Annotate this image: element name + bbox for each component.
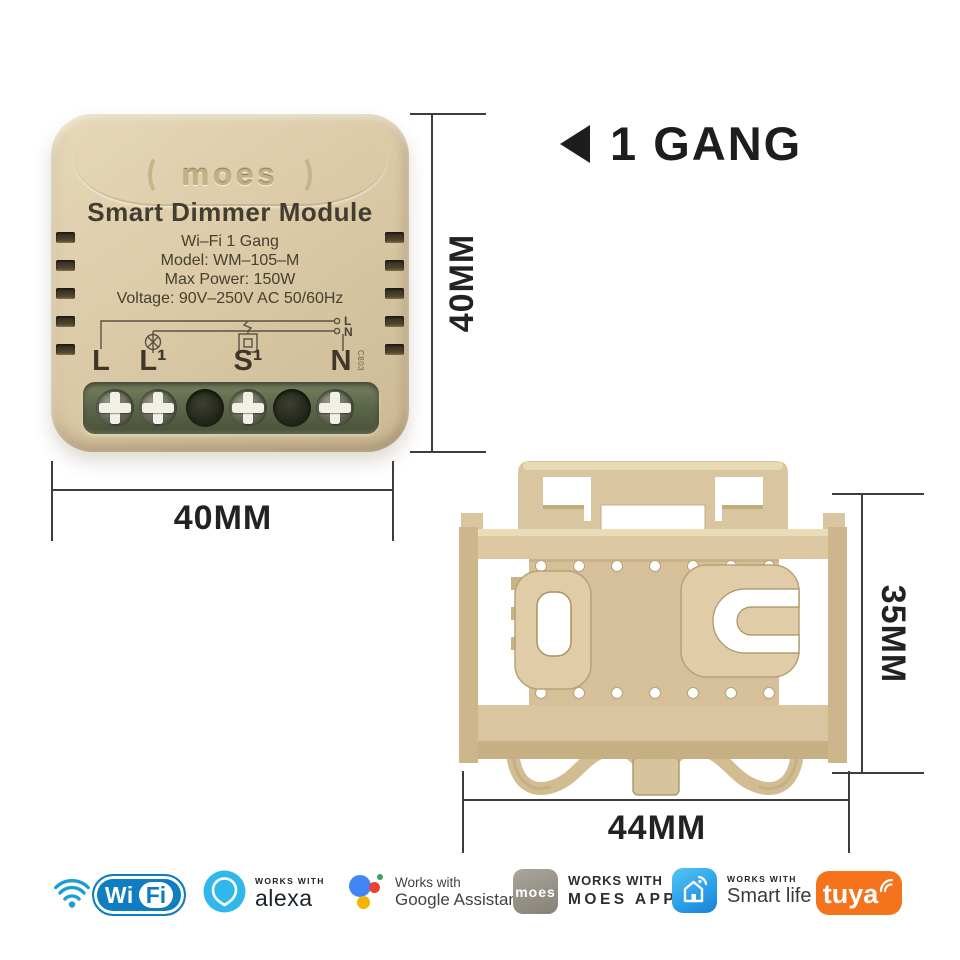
moes-app-icon-text: moes xyxy=(515,884,556,900)
gang-heading: 1 GANG xyxy=(560,120,802,167)
smart-life-badge: WORKS WITH Smart life xyxy=(727,874,811,908)
wifi-wi-text: Wi xyxy=(105,882,134,909)
alexa-name: alexa xyxy=(255,886,325,910)
smart-life-caption: WORKS WITH xyxy=(727,874,811,884)
bracket-right-boss xyxy=(681,565,799,677)
dimension-tick xyxy=(51,461,53,541)
bracket-side-frame xyxy=(459,527,478,763)
wiring-output-n: N xyxy=(344,325,353,339)
front-width-label: 40MM xyxy=(163,501,283,535)
tuya-logo: tuya xyxy=(816,871,902,915)
device-title: Smart Dimmer Module xyxy=(51,197,409,228)
google-green-dot xyxy=(377,874,383,880)
gang-label: 1 GANG xyxy=(610,120,802,167)
brand-arc-left-icon xyxy=(148,154,172,196)
tuya-name: tuya xyxy=(823,881,879,908)
terminal-screw xyxy=(229,389,267,427)
dimension-line xyxy=(861,494,863,774)
device-specs: Wi–Fi 1 Gang Model: WM–105–M Max Power: … xyxy=(51,232,409,308)
brand-logo-text: moes xyxy=(182,157,279,193)
brand-arc-right-icon xyxy=(288,154,312,196)
smart-life-name: Smart life xyxy=(727,884,811,908)
vent-slot xyxy=(385,288,404,299)
terminal-hole xyxy=(273,389,311,427)
dimension-tick xyxy=(410,113,486,115)
terminal-screw xyxy=(139,389,177,427)
bracket-height-label: 35MM xyxy=(876,574,910,694)
google-caption: Works with xyxy=(395,874,523,891)
bracket-side-frame xyxy=(828,527,847,763)
vent-slot xyxy=(56,288,75,299)
dimension-line xyxy=(52,489,394,491)
smart-life-house-icon xyxy=(672,868,717,913)
spec-line: Max Power: 150W xyxy=(51,270,409,289)
dimension-tick xyxy=(392,461,394,541)
vent-slot xyxy=(56,232,75,243)
dimension-tick xyxy=(462,771,464,853)
dimension-line xyxy=(431,114,433,452)
moes-app-name: MOES APP xyxy=(568,890,677,910)
terminal-screw xyxy=(316,389,354,427)
dimension-tick xyxy=(832,493,924,495)
wifi-signal-icon xyxy=(54,879,90,909)
side-code: C803 xyxy=(356,350,365,371)
vent-slot xyxy=(385,232,404,243)
dimension-tick xyxy=(832,772,924,774)
bracket-spring-clip xyxy=(633,757,679,795)
left-triangle-icon xyxy=(560,125,590,163)
google-yellow-dot xyxy=(357,896,370,909)
brand-logo: moes xyxy=(51,154,409,196)
alexa-badge: WORKS WITH alexa xyxy=(255,876,325,910)
dimension-tick xyxy=(848,771,850,853)
moes-app-icon: moes xyxy=(513,869,558,914)
vent-slot xyxy=(56,260,75,271)
tuya-signal-icon xyxy=(879,878,895,893)
terminal-label-l1: L¹ xyxy=(125,345,181,378)
google-assistant-icon xyxy=(346,870,390,912)
product-diagram-page: 1 GANG moes Smart Dimmer Module Wi–Fi 1 … xyxy=(0,0,960,960)
bracket-width-label: 44MM xyxy=(597,811,717,845)
moes-app-caption: WORKS WITH xyxy=(568,872,677,890)
terminal-hole xyxy=(186,389,224,427)
dimension-line xyxy=(463,799,849,801)
smart-life-icon xyxy=(672,868,717,913)
terminal-label-s1: S¹ xyxy=(220,345,276,378)
wifi-fi-text: Fi xyxy=(139,882,173,908)
google-name: Google Assistant xyxy=(395,891,523,908)
wifi-logo: Wi Fi xyxy=(92,874,186,916)
front-height-label: 40MM xyxy=(445,223,479,343)
google-red-dot xyxy=(369,882,380,893)
google-badge: Works with Google Assistant xyxy=(395,874,523,908)
google-blue-dot xyxy=(349,875,371,897)
terminal-block xyxy=(83,382,379,434)
terminal-screw xyxy=(96,389,134,427)
spec-line: Voltage: 90V–250V AC 50/60Hz xyxy=(51,289,409,308)
vent-slot xyxy=(56,316,75,327)
vent-slot xyxy=(385,260,404,271)
mounting-bracket-back-view xyxy=(453,453,853,805)
alexa-icon xyxy=(203,870,246,913)
moes-app-badge: WORKS WITH MOES APP xyxy=(568,872,677,910)
dimmer-module-front-view: moes Smart Dimmer Module Wi–Fi 1 Gang Mo… xyxy=(51,114,409,452)
spec-line: Model: WM–105–M xyxy=(51,251,409,270)
spec-line: Wi–Fi 1 Gang xyxy=(51,232,409,251)
terminal-label-l: L xyxy=(73,345,129,378)
